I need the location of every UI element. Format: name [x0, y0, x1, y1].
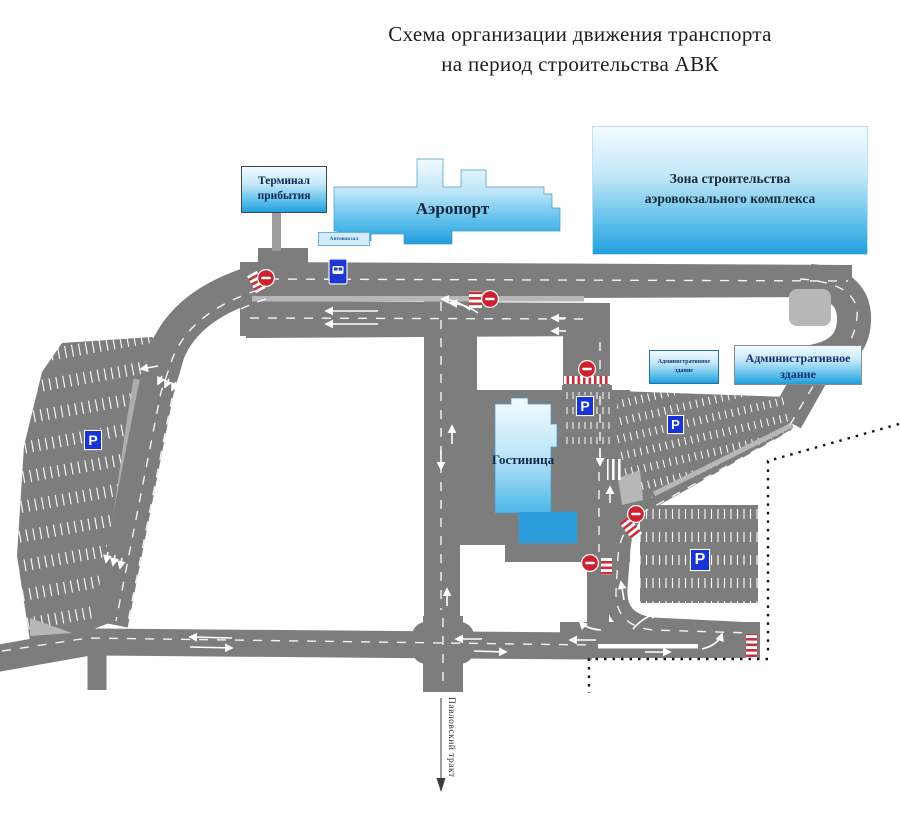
map-title-line2: на период строительства АВК [240, 52, 900, 77]
crosswalk-marking [746, 634, 757, 659]
traffic-scheme-map: Схема организации движения транспорта на… [0, 0, 900, 837]
terminal-arrival-sign: Терминал прибытия [241, 166, 327, 213]
crosswalk-marking [601, 558, 612, 575]
parking-sign-icon: P [690, 549, 710, 571]
construction-zone: Зона строительства аэровокзального компл… [592, 126, 868, 255]
no-entry-sign-icon [628, 506, 645, 523]
parking-sign-icon: P [576, 396, 594, 416]
map-title-line1: Схема организации движения транспорта [240, 22, 900, 47]
pedestrian-crossing-white [607, 459, 624, 480]
admin-building-label: Административное здание [734, 345, 862, 385]
bus-station-label: Автовокзал [318, 232, 370, 246]
no-entry-sign-icon [582, 555, 599, 572]
road-name-label: Павловский тракт [446, 697, 456, 792]
no-entry-sign-icon [579, 361, 596, 378]
road-continuation-arrow [437, 698, 446, 792]
no-entry-sign-icon [482, 291, 499, 308]
hotel-annex-shape [519, 512, 577, 543]
parking-lot-hotel [562, 385, 612, 447]
bus-stop-sign-icon [329, 259, 347, 284]
parking-sign-icon: P [84, 430, 102, 450]
terminal-signpost [272, 211, 281, 251]
no-entry-sign-icon [258, 270, 275, 287]
admin-building-small: Административное здание [649, 350, 719, 384]
road-network [0, 248, 854, 692]
parking-lot-admin [617, 391, 793, 498]
hotel-label: Гостиница [483, 452, 563, 468]
parking-sign-icon: P [667, 415, 684, 434]
airport-building-label: Аэропорт [390, 199, 515, 219]
crosswalk-marking [469, 291, 482, 308]
